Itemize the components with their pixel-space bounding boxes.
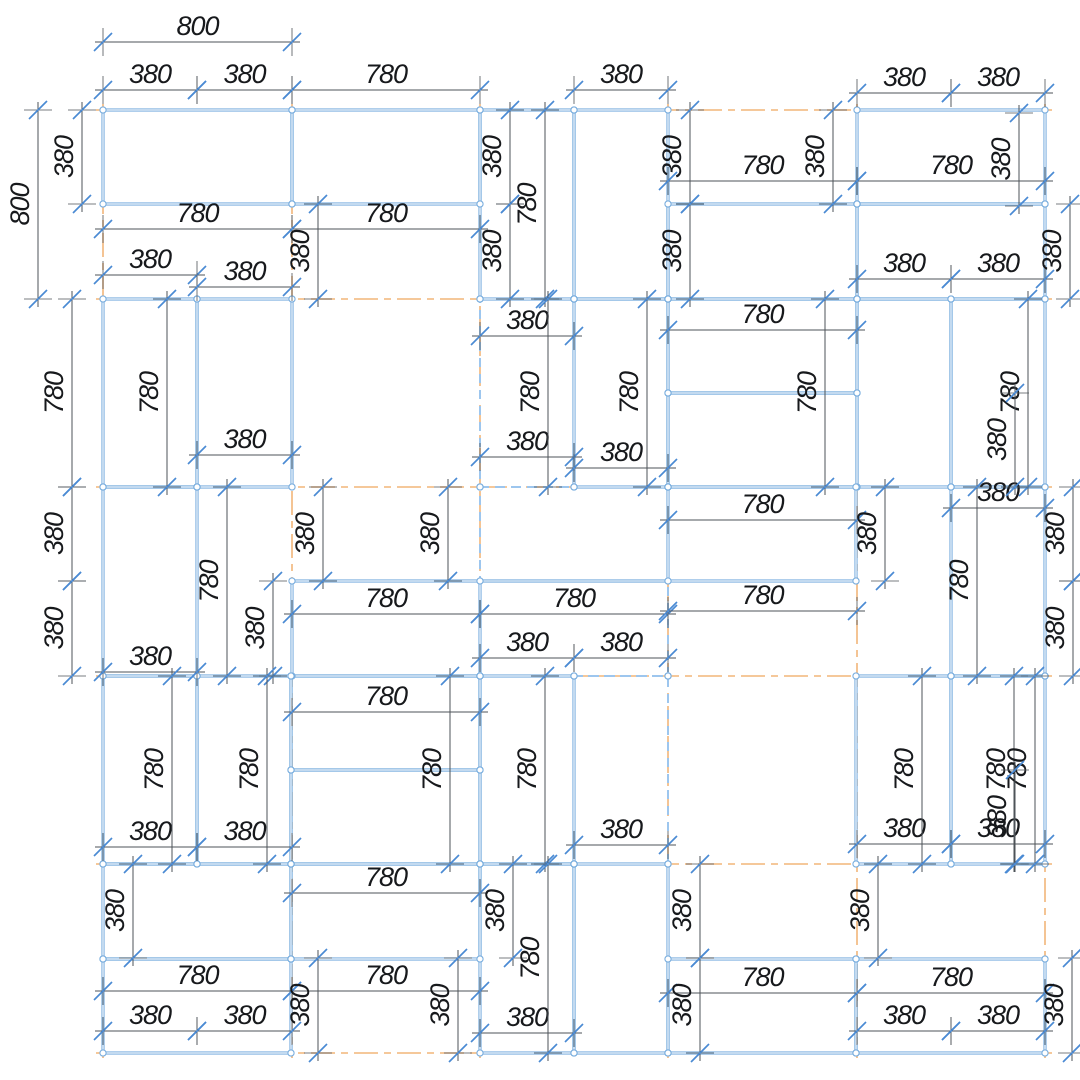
corner-node (288, 956, 294, 962)
corner-node (665, 578, 671, 584)
dim-label: 780 (365, 862, 408, 892)
dimension: 780 (848, 150, 1054, 195)
dim-label: 380 (982, 795, 1012, 838)
corner-node (571, 861, 577, 867)
corner-node (854, 390, 860, 396)
dimension: 380 (667, 949, 714, 1062)
dim-label: 380 (506, 305, 549, 335)
dimension: 380 (94, 641, 206, 686)
dim-label: 380 (223, 424, 266, 454)
dim-label: 780 (741, 489, 784, 519)
dimension: 380 (290, 478, 337, 590)
dim-label: 380 (600, 627, 643, 657)
dim-label: 380 (240, 606, 270, 649)
dim-label: 380 (129, 816, 172, 846)
panel-core (103, 864, 291, 959)
corner-node (665, 107, 671, 113)
dimension: 380 (845, 855, 892, 967)
corner-node (477, 673, 483, 679)
corner-node (1042, 107, 1048, 113)
dim-label: 780 (515, 936, 545, 979)
corner-node (100, 484, 106, 490)
dim-label: 380 (480, 889, 510, 932)
corner-node (477, 861, 483, 867)
dim-label: 780 (139, 748, 169, 791)
dim-label: 780 (1002, 748, 1032, 791)
dim-label: 780 (365, 681, 408, 711)
dimension: 380 (49, 101, 96, 213)
corner-node (477, 956, 483, 962)
corner-node (665, 484, 671, 490)
dimension: 800 (94, 11, 301, 56)
dim-label: 380 (977, 248, 1020, 278)
dim-label: 780 (889, 748, 919, 791)
dim-label: 380 (883, 813, 926, 843)
corner-node (288, 1050, 294, 1056)
dim-label: 780 (792, 371, 822, 414)
dim-label: 380 (39, 606, 69, 649)
dim-label: 780 (176, 198, 219, 228)
dim-label: 780 (944, 559, 974, 602)
dimensions: 8003803807803803803807807807807803803803… (5, 11, 1080, 1062)
corner-node (665, 861, 671, 867)
corner-node (194, 484, 200, 490)
corner-node (1042, 296, 1048, 302)
corner-node (477, 484, 483, 490)
dim-label: 380 (883, 248, 926, 278)
dim-label: 780 (365, 960, 408, 990)
panel (103, 110, 292, 204)
dim-label: 380 (477, 135, 507, 178)
dim-label: 780 (39, 371, 69, 414)
dim-label: 380 (977, 62, 1020, 92)
dim-label: 380 (600, 59, 643, 89)
dim-label: 780 (134, 371, 164, 414)
dimension: 380 (471, 305, 583, 350)
dimension: 380 (240, 572, 287, 685)
corner-node (853, 578, 859, 584)
corner-node (100, 296, 106, 302)
panel-core (103, 110, 292, 204)
dim-label: 780 (194, 559, 224, 602)
dim-label: 780 (741, 962, 784, 992)
dimension: 380 (39, 572, 86, 685)
corner-node (665, 201, 671, 207)
dim-label: 800 (176, 11, 219, 41)
corner-node (854, 296, 860, 302)
dimension: 780 (512, 667, 559, 873)
corner-node (477, 107, 483, 113)
dim-label: 380 (657, 135, 687, 178)
dim-label: 780 (512, 748, 542, 791)
dim-label: 380 (845, 889, 875, 932)
dimension: 780 (848, 962, 1054, 1007)
corner-node (854, 107, 860, 113)
dimension: 380 (188, 424, 301, 469)
dimension: 780 (659, 580, 866, 625)
dim-label: 380 (883, 1000, 926, 1030)
dim-label: 380 (506, 627, 549, 657)
dim-label: 380 (129, 59, 172, 89)
panel-core (857, 299, 951, 487)
dim-label: 380 (1040, 512, 1070, 555)
panel (668, 393, 857, 487)
panel (291, 770, 480, 864)
panel (292, 110, 480, 204)
dimension: 380 (565, 437, 677, 482)
dim-label: 380 (883, 62, 926, 92)
corner-node (853, 484, 859, 490)
dim-label: 380 (129, 1000, 172, 1030)
dim-label: 380 (982, 418, 1012, 461)
dim-label: 380 (667, 983, 697, 1026)
dim-label: 380 (285, 983, 315, 1026)
dimension: 800 (5, 101, 52, 308)
panel-core (574, 864, 668, 1053)
dimension: 380 (800, 101, 847, 213)
corner-node (854, 201, 860, 207)
panel-layout-drawing: 8003803807803803803807807807807803803803… (0, 0, 1080, 1080)
panel (857, 299, 951, 487)
corner-node (571, 673, 577, 679)
panel (103, 864, 291, 959)
corner-node (853, 861, 859, 867)
dim-label: 380 (129, 641, 172, 671)
dim-label: 380 (1037, 229, 1067, 272)
dim-label: 380 (657, 229, 687, 272)
dim-label: 380 (425, 983, 455, 1026)
dimension: 380 (852, 478, 899, 590)
dimension: 380 (425, 949, 472, 1062)
dim-label: 380 (39, 512, 69, 555)
dim-label: 380 (415, 512, 445, 555)
panel-core (197, 299, 292, 487)
dimension: 380 (94, 244, 206, 289)
dim-label: 380 (100, 889, 130, 932)
corner-node (665, 673, 671, 679)
dim-label: 380 (1040, 606, 1070, 649)
corner-node (571, 107, 577, 113)
dimension: 380 (942, 477, 1054, 522)
corner-node (665, 956, 671, 962)
corner-node (948, 296, 954, 302)
dim-label: 380 (223, 816, 266, 846)
dim-label: 780 (995, 371, 1025, 414)
corner-node (853, 1050, 859, 1056)
dim-label: 800 (5, 182, 35, 225)
dim-label: 380 (600, 437, 643, 467)
dim-label: 780 (741, 580, 784, 610)
corner-node (948, 673, 954, 679)
panel-core (292, 110, 480, 204)
dim-label: 380 (506, 426, 549, 456)
dim-label: 780 (614, 371, 644, 414)
dim-label: 780 (553, 583, 596, 613)
panel-core (668, 204, 857, 299)
corner-node (571, 296, 577, 302)
dim-label: 380 (223, 256, 266, 286)
corner-node (948, 861, 954, 867)
panel-core (668, 393, 857, 487)
dim-label: 780 (365, 59, 408, 89)
dimension: 780 (39, 290, 86, 496)
corner-node (100, 107, 106, 113)
dimension: 380 (415, 478, 462, 590)
corner-node (571, 1050, 577, 1056)
dim-label: 780 (930, 962, 973, 992)
panel (668, 204, 857, 299)
dim-label: 380 (986, 137, 1016, 180)
corner-node (665, 296, 671, 302)
dim-label: 380 (506, 1002, 549, 1032)
dimension: 780 (659, 489, 866, 534)
corner-node (1042, 956, 1048, 962)
panel-core (574, 110, 668, 299)
corner-node (289, 578, 295, 584)
panel (574, 864, 668, 1053)
dim-label: 380 (129, 244, 172, 274)
corner-node (100, 1050, 106, 1056)
dim-label: 380 (477, 229, 507, 272)
dim-label: 380 (223, 1000, 266, 1030)
dimension: 780 (194, 478, 241, 685)
corner-node (100, 201, 106, 207)
dim-label: 380 (285, 229, 315, 272)
dim-label: 380 (977, 1000, 1020, 1030)
dim-label: 780 (741, 299, 784, 329)
dimension: 380 (100, 855, 147, 967)
corner-node (853, 673, 859, 679)
corner-node (665, 1050, 671, 1056)
corner-node (289, 201, 295, 207)
dim-label: 780 (741, 150, 784, 180)
dim-label: 780 (176, 960, 219, 990)
dim-label: 780 (417, 748, 447, 791)
corner-node (477, 1050, 483, 1056)
dimension: 380 (565, 814, 677, 859)
panel (197, 299, 292, 487)
dim-label: 380 (49, 135, 79, 178)
dim-label: 780 (512, 182, 542, 225)
corner-node (100, 861, 106, 867)
corner-node (100, 956, 106, 962)
corner-node (288, 767, 294, 773)
corner-node (571, 484, 577, 490)
dimension: 380 (565, 627, 677, 672)
corner-node (477, 201, 483, 207)
corner-node (288, 673, 294, 679)
dimension: 780 (134, 290, 181, 496)
dim-label: 380 (800, 135, 830, 178)
dim-label: 780 (515, 371, 545, 414)
dim-label: 780 (234, 748, 264, 791)
corner-node (948, 484, 954, 490)
dimension: 380 (986, 104, 1033, 215)
dimension: 380 (942, 1000, 1054, 1045)
dim-label: 780 (930, 150, 973, 180)
corner-node (477, 296, 483, 302)
corner-node (1042, 201, 1048, 207)
corner-node (665, 390, 671, 396)
corner-node (289, 107, 295, 113)
dim-label: 380 (667, 889, 697, 932)
dimension: 380 (565, 59, 677, 104)
corner-node (289, 484, 295, 490)
dimension: 780 (283, 59, 489, 104)
corner-node (477, 767, 483, 773)
dim-label: 380 (290, 512, 320, 555)
dimension: 780 (471, 583, 677, 628)
dimension: 780 (512, 101, 559, 308)
dim-label: 380 (1039, 983, 1069, 1026)
dimension: 380 (471, 426, 583, 471)
dimension: 780 (283, 862, 489, 907)
dimension: 780 (283, 681, 489, 726)
corner-node (477, 578, 483, 584)
dim-label: 780 (365, 583, 408, 613)
dim-label: 380 (600, 814, 643, 844)
corner-node (194, 861, 200, 867)
dimension: 380 (942, 62, 1054, 107)
dimension: 380 (657, 195, 704, 308)
panel-core (291, 770, 480, 864)
dimension: 380 (188, 816, 301, 861)
corner-node (1042, 1050, 1048, 1056)
dim-label: 380 (223, 59, 266, 89)
cad-canvas: 8003803807803803803807807807807803803803… (0, 0, 1080, 1080)
panel (574, 110, 668, 299)
dim-label: 380 (852, 512, 882, 555)
corner-node (853, 956, 859, 962)
dim-label: 780 (365, 198, 408, 228)
corner-node (1042, 484, 1048, 490)
corner-node (288, 861, 294, 867)
dimension: 380 (471, 1002, 583, 1047)
